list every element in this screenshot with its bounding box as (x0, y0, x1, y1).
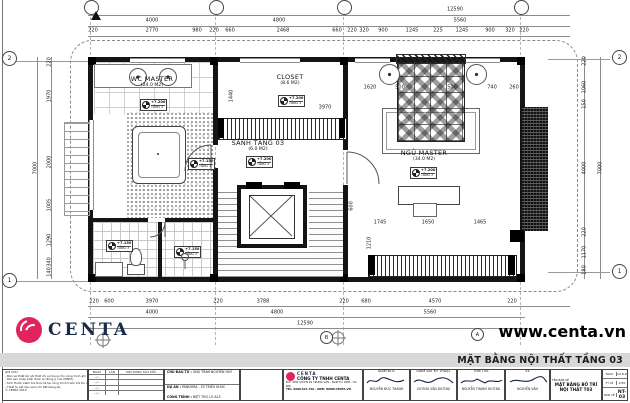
project-value: PANDORA - 53 TRIỀU KHÚC (182, 386, 225, 394)
revision-date: …/… (89, 391, 106, 395)
titleblock-meta: NGÀY 14.8.2019 TỶ LỆ 1/50 BẢN VẼ NT-03 (602, 369, 628, 401)
revision-date: …/… (89, 375, 106, 379)
signer-role: GIÁM SÁT KỸ THUẬT (411, 370, 456, 374)
project-value: BIỆT THỰ LÔ A15 (193, 396, 221, 401)
titleblock-company: CENTA CÔNG TY TNHH CENTA Đ/C: NHÀ VƯỜN 4… (283, 369, 363, 401)
floor-plan-sheet: 2 1 2 1 12590 4000 4800 5560 220 2770 98… (0, 0, 630, 403)
revision-cell (106, 386, 119, 390)
door-arc (347, 152, 379, 184)
project-value: ÔNG TRẦN NGUYÊN HUY (193, 371, 232, 383)
website-link[interactable]: www.centa.vn (499, 322, 626, 341)
meta-label: BẢN VẼ (603, 393, 617, 397)
grid-bubble-b: B (320, 331, 333, 344)
titleblock-project: CHỦ ĐẦU TƯ : ÔNG TRẦN NGUYÊN HUY DỰ ÁN :… (164, 369, 240, 401)
note-line: © CENTA 2019 (5, 389, 85, 393)
revision-header: NGÀY (89, 370, 106, 374)
signer-name: NGUYỄN ĐỨC THÀNH (364, 388, 409, 391)
signature (506, 374, 549, 388)
revision-cell (119, 386, 163, 390)
revision-date: …/… (89, 380, 106, 384)
company-contact: TEL: 0988.621.750 - WEB: WWW.CENTA.VN (286, 388, 360, 392)
project-label: CHỦ ĐẦU TƯ : (167, 371, 192, 383)
signature (411, 374, 456, 388)
sheet-title-strip: MẶT BẰNG NỘI THẤT TẦNG 03 (0, 353, 630, 367)
revision-cell (106, 391, 119, 395)
project-label: CÔNG TRÌNH : (167, 396, 192, 401)
signer-name: VƯƠNG VĂN DƯƠNG (411, 388, 456, 391)
revision-header: NỘI DUNG SỬA ĐỔI (119, 370, 163, 374)
project-label: DỰ ÁN : (167, 386, 181, 394)
signer-name: NGUYỄN THANH HƯƠNG (458, 388, 504, 391)
drawing-title: MẶT BẰNG BỐ TRÍ NỘI THẤT T03 (551, 382, 601, 392)
centa-logo-icon (16, 317, 42, 343)
revision-cell (119, 391, 163, 395)
revision-cell (119, 380, 163, 384)
shower-symbol (182, 254, 189, 261)
grid-bubble-a: A (471, 328, 484, 341)
signature (364, 374, 409, 388)
titleblock-empty (240, 369, 283, 401)
titleblock-signer-designer: THIẾT KẾ NGUYỄN THANH HƯƠNG (457, 369, 505, 401)
titleblock-signer-director: GIÁM ĐỐC NGUYỄN ĐỨC THÀNH (363, 369, 410, 401)
revision-date: …/… (89, 386, 106, 390)
titleblock-signer-draftsman: VẼ NGUYỄN VĂN (505, 369, 550, 401)
sheet-title: MẶT BẰNG NỘI THẤT TẦNG 03 (457, 355, 623, 366)
meta-label: NGÀY (603, 372, 617, 376)
meta-value: NT-03 (617, 390, 627, 400)
meta-label: TỶ LỆ (603, 381, 617, 385)
revision-cell (106, 375, 119, 379)
titleblock-signer-supervisor: GIÁM SÁT KỸ THUẬT VƯƠNG VĂN DƯƠNG (410, 369, 457, 401)
meta-value: 14.8.2019 (617, 372, 628, 376)
door-arc (185, 145, 211, 171)
revision-cell (106, 380, 119, 384)
titleblock-revisions: NGÀY LẦN NỘI DUNG SỬA ĐỔI …/… …/… …/… …/… (88, 369, 164, 401)
titleblock-notes: GHI CHÚ: - Bản vẽ thiết kế nội thất chỉ … (2, 369, 88, 401)
north-marker (91, 11, 101, 20)
centa-logo-text: CENTA (48, 320, 130, 340)
titleblock-drawing-title: TÊN BẢN VẼ MẶT BẰNG BỐ TRÍ NỘI THẤT T03 (550, 369, 602, 401)
plan-linework (0, 0, 630, 350)
signature (459, 374, 504, 388)
meta-value: 1/50 (617, 381, 627, 385)
signer-name: NGUYỄN VĂN (506, 388, 549, 391)
revision-cell (119, 375, 163, 379)
revision-header: LẦN (106, 370, 119, 374)
door-arc (150, 222, 165, 237)
